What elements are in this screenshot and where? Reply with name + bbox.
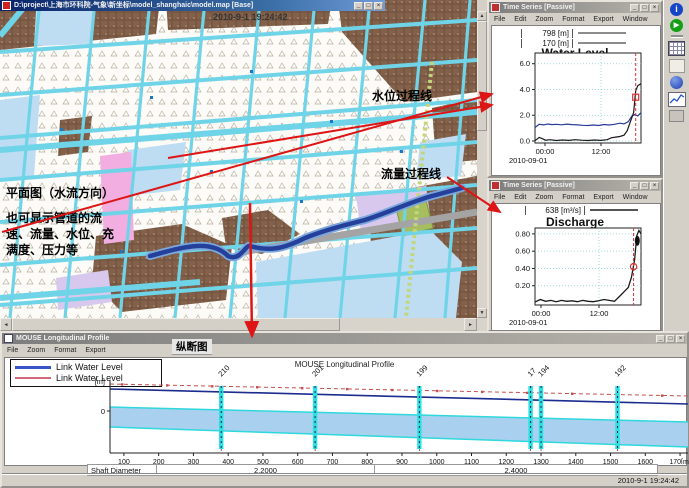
menu-zoom[interactable]: Zoom — [27, 347, 45, 354]
menu-edit[interactable]: Edit — [514, 194, 526, 201]
desktop: { "map_window": { "title": "D:\\project\… — [0, 0, 689, 488]
time-series-icon — [491, 3, 500, 12]
annotation-water-level: 水位过程线 — [372, 87, 432, 104]
map-minimize-button[interactable]: _ — [354, 2, 363, 10]
right-toolbar: i ▶ — [663, 0, 689, 332]
globe-icon[interactable] — [670, 76, 683, 89]
wl-close-button[interactable]: × — [650, 4, 659, 12]
menu-zoom[interactable]: Zoom — [535, 16, 553, 23]
time-series-icon — [491, 181, 500, 190]
separator — [671, 35, 683, 38]
scroll-up-arrow[interactable]: ▲ — [477, 11, 487, 21]
menu-window[interactable]: Window — [623, 194, 648, 201]
profile-window-title: MOUSE Longitudinal Profile — [16, 333, 109, 344]
map-canvas[interactable]: 2010-9-1 19:24:42 — [0, 0, 477, 318]
menu-file[interactable]: File — [7, 347, 18, 354]
legend-label: Link Water Level — [56, 362, 123, 372]
menu-export[interactable]: Export — [85, 347, 105, 354]
water-level-titlebar[interactable]: Time Series [Passive] _ □ × — [489, 2, 661, 13]
map-hscrollbar[interactable]: ◄ ► — [0, 318, 477, 331]
prof-maximize-button[interactable]: □ — [666, 335, 675, 343]
city-map — [0, 0, 477, 318]
menu-file[interactable]: File — [494, 16, 505, 23]
menu-window[interactable]: Window — [623, 16, 648, 23]
map-window: 2010-9-1 19:24:42 D:\project\上海市环科院-气象\新… — [0, 0, 487, 331]
legend-label: 798 [m] — [521, 29, 573, 38]
grid-icon[interactable] — [668, 41, 685, 56]
profile-menubar: File Zoom Format Export — [2, 344, 687, 356]
scroll-right-arrow[interactable]: ► — [464, 318, 477, 331]
map-vscrollbar[interactable]: ▲ ▼ — [477, 11, 487, 318]
dis-maximize-button[interactable]: □ — [640, 182, 649, 190]
wl-legend-row-1: 798 [m] — [521, 28, 626, 38]
water-level-window: Time Series [Passive] _ □ × File Edit Zo… — [487, 0, 663, 178]
legend-line-swatch — [590, 209, 638, 211]
prof-minimize-button[interactable]: _ — [656, 335, 665, 343]
water-level-chart-title: Water Level — [489, 46, 661, 60]
map-window-title: D:\project\上海市环科院-气象\新坐标\model_shanghaic… — [14, 0, 253, 11]
menu-file[interactable]: File — [494, 194, 505, 201]
annotation-plan-view: 平面图（水流方向） — [6, 184, 114, 201]
map-timestamp: 2010-9-1 19:24:42 — [213, 12, 288, 22]
map-close-button[interactable]: × — [374, 2, 383, 10]
menu-format[interactable]: Format — [562, 194, 584, 201]
dis-close-button[interactable]: × — [650, 182, 659, 190]
page-icon[interactable] — [669, 59, 685, 73]
discharge-chart-title: Discharge — [489, 215, 661, 229]
export-icon[interactable] — [669, 110, 684, 122]
menu-export[interactable]: Export — [593, 16, 613, 23]
discharge-window-title: Time Series [Passive] — [503, 180, 575, 191]
scroll-down-arrow[interactable]: ▼ — [477, 308, 487, 318]
menu-format[interactable]: Format — [562, 16, 584, 23]
wl-minimize-button[interactable]: _ — [630, 4, 639, 12]
profile-window-icon — [4, 334, 13, 343]
legend-label: 638 [m³/s] — [525, 206, 585, 215]
map-window-icon — [2, 1, 11, 10]
prof-close-button[interactable]: × — [676, 335, 685, 343]
menu-zoom[interactable]: Zoom — [535, 194, 553, 201]
go-icon[interactable]: ▶ — [670, 19, 683, 32]
menu-format[interactable]: Format — [54, 347, 76, 354]
menu-export[interactable]: Export — [593, 194, 613, 201]
scroll-corner — [477, 318, 487, 331]
legend-line-swatch — [578, 42, 626, 44]
profile-legend-box: Link Water Level Link Water Level — [10, 359, 162, 387]
map-maximize-button[interactable]: □ — [364, 2, 373, 10]
legend-line-swatch — [578, 32, 626, 34]
profile-statusbar: 2010-9-1 19:24:42 — [2, 474, 687, 486]
discharge-window: Time Series [Passive] _ □ × File Edit Zo… — [487, 178, 663, 332]
dis-minimize-button[interactable]: _ — [630, 182, 639, 190]
annotation-discharge: 流量过程线 — [381, 165, 441, 182]
map-titlebar[interactable]: D:\project\上海市环科院-气象\新坐标\model_shanghaic… — [0, 0, 385, 11]
vscroll-thumb[interactable] — [477, 21, 487, 131]
water-level-window-title: Time Series [Passive] — [503, 2, 575, 13]
legend-line-swatch — [15, 377, 51, 379]
legend-label: Link Water Level — [56, 373, 123, 383]
discharge-menubar: File Edit Zoom Format Export Window — [489, 191, 661, 203]
annotation-pipe-info-line3: 满度、压力等 — [6, 241, 78, 258]
annotation-pipe-info-line1: 也可显示管道的流 — [6, 209, 102, 226]
annotation-pipe-info-line2: 速、流量、水位、充 — [6, 225, 114, 242]
annotation-profile-view: 纵断图 — [172, 339, 212, 355]
legend-line-swatch — [15, 366, 51, 369]
scroll-left-arrow[interactable]: ◄ — [0, 318, 12, 331]
wl-maximize-button[interactable]: □ — [640, 4, 649, 12]
chart-icon[interactable] — [668, 92, 686, 107]
profile-titlebar[interactable]: MOUSE Longitudinal Profile _ □ × — [2, 333, 687, 344]
discharge-titlebar[interactable]: Time Series [Passive] _ □ × — [489, 180, 661, 191]
water-level-menubar: File Edit Zoom Format Export Window — [489, 13, 661, 25]
dis-legend-row: 638 [m³/s] — [525, 205, 638, 215]
info-icon[interactable]: i — [670, 3, 683, 16]
profile-window: MOUSE Longitudinal Profile _ □ × File Zo… — [0, 331, 689, 488]
menu-edit[interactable]: Edit — [514, 16, 526, 23]
hscroll-thumb[interactable] — [12, 318, 340, 331]
status-timestamp: 2010-9-1 19:24:42 — [618, 476, 679, 485]
